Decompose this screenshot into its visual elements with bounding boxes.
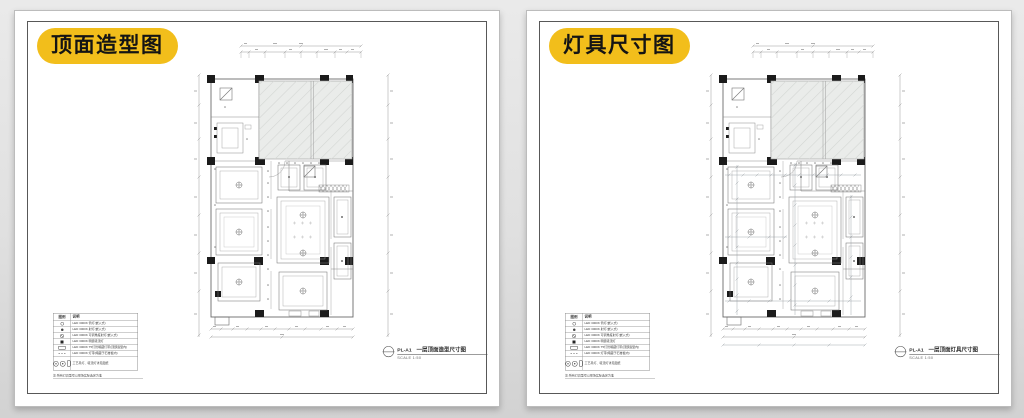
- lighting-legend-table: 图例 说明 LED 3000K 筒灯(嵌入式) LED 3000K 射灯(嵌入式…: [565, 313, 650, 371]
- drawing-title: PL-A1 一层顶面造型尺寸图: [397, 345, 487, 355]
- cove-light-icon: [59, 354, 66, 355]
- adjustable-spot-icon: [572, 334, 576, 338]
- sheet-ceiling-design: 顶面造型图 图例 说明 LED 3000K 筒灯(嵌入式) LED 3000K …: [14, 10, 500, 407]
- lighting-legend-table: 图例 说明 LED 3000K 筒灯(嵌入式) LED 3000K 射灯(嵌入式…: [53, 313, 138, 371]
- ceiling-lamp-icon: [573, 340, 576, 343]
- pendant-lamp-icon: [60, 361, 65, 367]
- legend-header-row: 图例 说明: [54, 314, 138, 322]
- light-strip-icon: [571, 346, 578, 350]
- legend-row: 工艺吊灯、吸顶灯详见图纸: [566, 357, 650, 370]
- legend-header-desc: 说明: [71, 315, 138, 320]
- drawing-code: PL-A1: [909, 347, 923, 353]
- legend-note: 注:所有灯具型号以现场实际选定为准: [53, 373, 143, 379]
- drawing-title-text: 一层顶面灯具尺寸图: [928, 347, 978, 353]
- canvas: { "page": { "background_top": "#eaeaea",…: [0, 0, 1024, 418]
- downlight-icon: [60, 322, 64, 326]
- legend-row: 工艺吊灯、吸顶灯详见图纸: [54, 357, 138, 370]
- ceiling-design-badge: 顶面造型图: [37, 28, 178, 64]
- detail-marker-icon: [895, 346, 906, 357]
- legend-header-desc: 说明: [583, 315, 650, 320]
- drawing-code: PL-A1: [397, 347, 411, 353]
- spotlight-icon: [61, 329, 64, 332]
- adjustable-spot-icon: [60, 334, 64, 338]
- tube-lamp-icon: [67, 360, 71, 367]
- sheet-lamp-dimensions: 灯具尺寸图 图例 说明 LED 3000K 筒灯(嵌入式) LED 3000K …: [526, 10, 1012, 407]
- legend-header-row: 图例 说明: [566, 314, 650, 322]
- legend-note: 注:所有灯具型号以现场实际选定为准: [565, 373, 655, 379]
- detail-marker-icon: [383, 346, 394, 357]
- light-strip-icon: [59, 346, 66, 350]
- tube-lamp-icon: [579, 360, 583, 367]
- pendant-lamp-icon: [54, 361, 59, 367]
- drawing-scale: SCALE 1:50: [909, 356, 999, 360]
- drawing-scale: SCALE 1:50: [397, 356, 487, 360]
- pendant-lamp-icon: [572, 361, 577, 367]
- lamp-dimensions-plan-drawing: [703, 39, 907, 361]
- drawing-title-text: 一层顶面造型尺寸图: [416, 347, 466, 353]
- ceiling-lamp-icon: [61, 340, 64, 343]
- cove-light-icon: [571, 354, 578, 355]
- downlight-icon: [572, 322, 576, 326]
- pendant-lamp-icon: [566, 361, 571, 367]
- title-block: PL-A1 一层顶面造型尺寸图 SCALE 1:50: [383, 345, 488, 360]
- legend-header-symbol: 图例: [566, 314, 584, 321]
- ceiling-design-plan-drawing: [191, 39, 395, 361]
- legend-header-symbol: 图例: [54, 314, 72, 321]
- title-block: PL-A1 一层顶面灯具尺寸图 SCALE 1:50: [895, 345, 1000, 360]
- drawing-title: PL-A1 一层顶面灯具尺寸图: [909, 345, 999, 355]
- lamp-dimensions-badge: 灯具尺寸图: [549, 28, 690, 64]
- spotlight-icon: [573, 329, 576, 332]
